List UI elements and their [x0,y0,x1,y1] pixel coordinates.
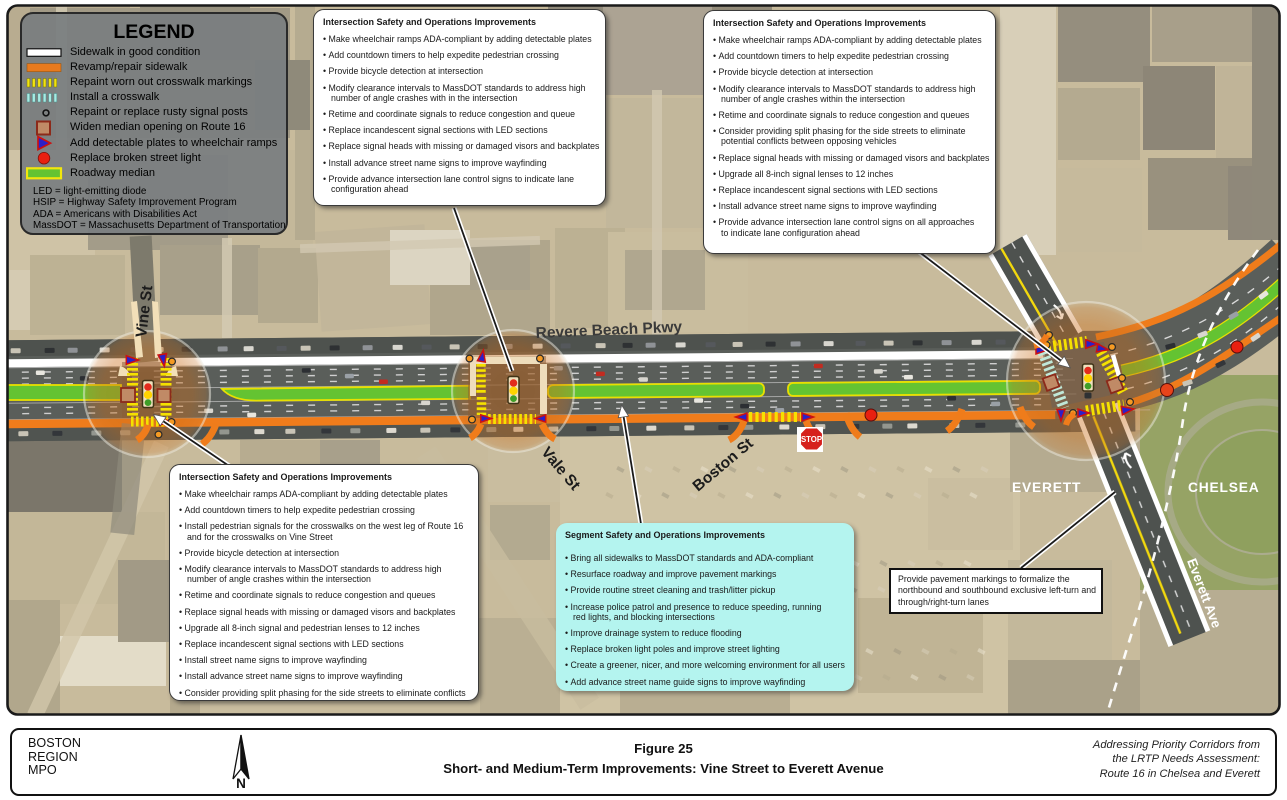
svg-text:EVERETT: EVERETT [1012,480,1081,495]
svg-text:N: N [236,776,246,791]
svg-text:STOP: STOP [801,435,822,444]
svg-text:CHELSEA: CHELSEA [1188,480,1260,495]
